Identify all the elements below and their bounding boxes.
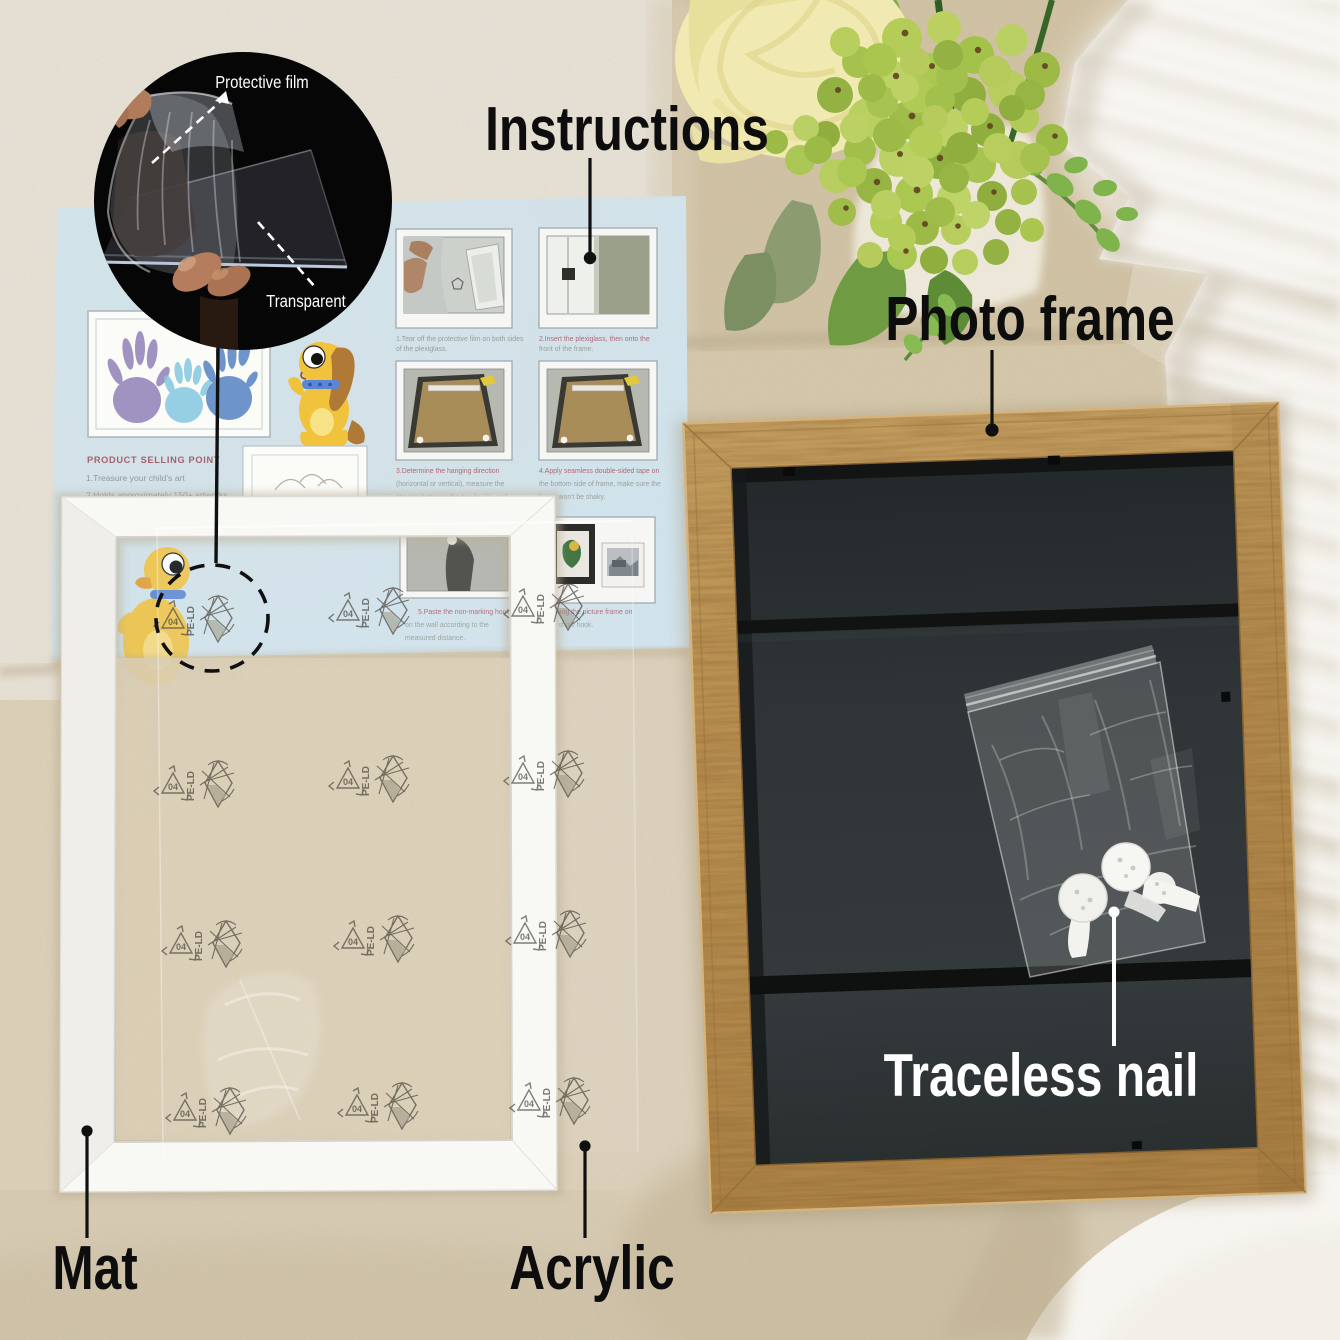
svg-text:Traceless nail: Traceless nail <box>884 1042 1199 1109</box>
svg-text:Mat: Mat <box>52 1233 137 1303</box>
svg-text:PRODUCT SELLING POINT: PRODUCT SELLING POINT <box>87 455 220 465</box>
svg-text:Instructions: Instructions <box>485 94 769 164</box>
svg-text:the bottom side of frame, make: the bottom side of frame, make sure the <box>539 481 661 488</box>
svg-text:front of the frame.: front of the frame. <box>539 346 593 353</box>
svg-text:2.Insert the plexiglass, then: 2.Insert the plexiglass, then onto the <box>539 336 650 343</box>
svg-text:04: 04 <box>168 617 178 627</box>
svg-text:Transparent: Transparent <box>266 292 346 311</box>
svg-text:Protective film: Protective film <box>215 73 308 92</box>
svg-text:1.Treasure your child's art: 1.Treasure your child's art <box>86 473 185 483</box>
svg-text:PE-LD: PE-LD <box>186 606 197 636</box>
svg-text:(horizontal or vertical), meas: (horizontal or vertical), measure the <box>396 481 505 488</box>
svg-text:3.Determine the hanging direct: 3.Determine the hanging direction <box>396 468 500 475</box>
svg-text:of the plexiglass.: of the plexiglass. <box>396 346 447 353</box>
svg-text:4.Apply seamless double-sided: 4.Apply seamless double-sided tape on <box>539 468 659 475</box>
svg-text:1.Tear off the protective film: 1.Tear off the protective film on both s… <box>396 336 524 343</box>
svg-text:Photo frame: Photo frame <box>885 284 1174 354</box>
svg-text:Acrylic: Acrylic <box>509 1233 674 1303</box>
